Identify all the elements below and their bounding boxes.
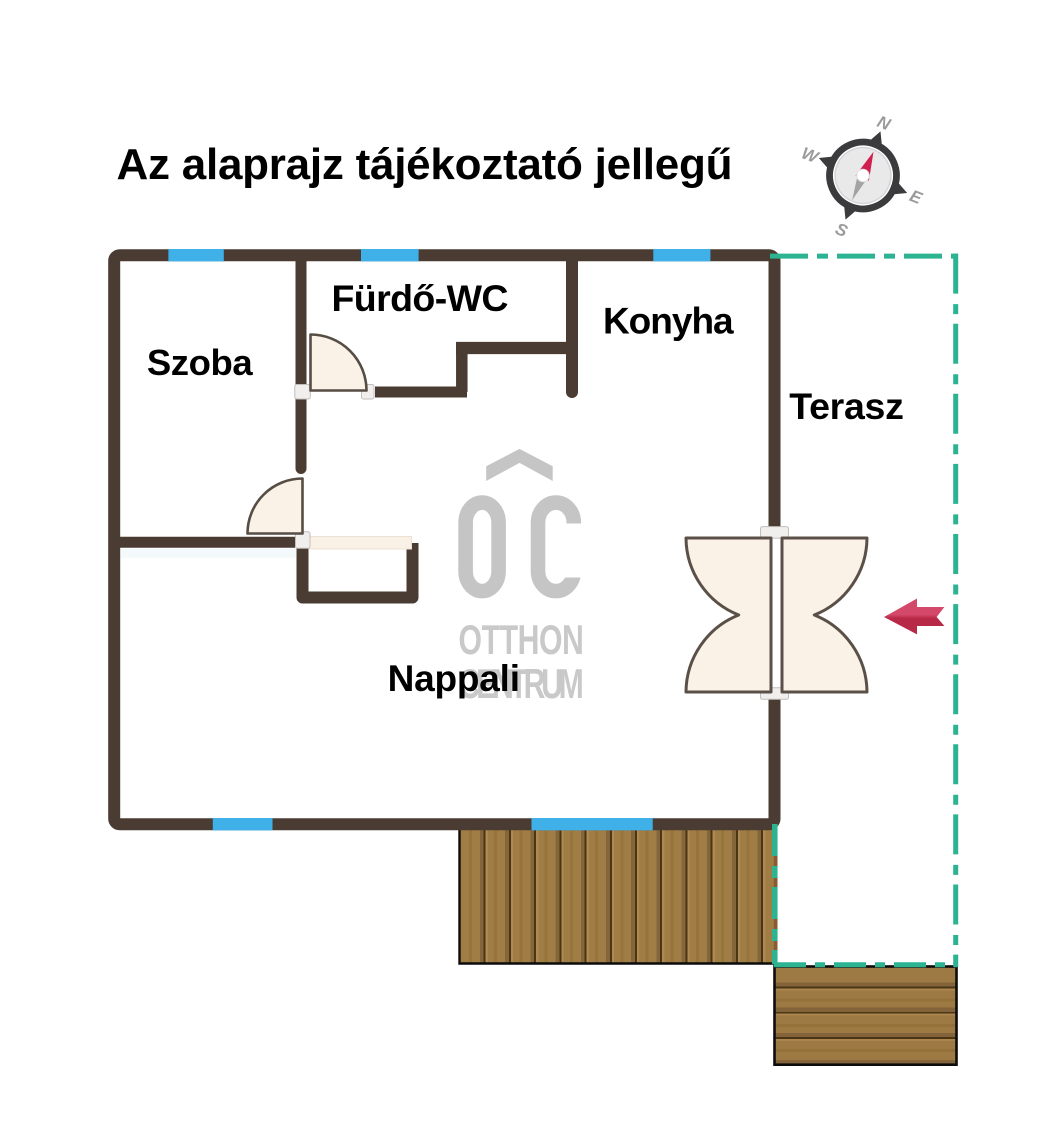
svg-text:Nappali: Nappali [388,658,520,699]
svg-text:N: N [875,112,894,134]
svg-text:OTTHON: OTTHON [459,616,584,663]
svg-text:Az alaprajz tájékoztató jelleg: Az alaprajz tájékoztató jellegű [117,140,733,189]
svg-text:W: W [799,143,823,167]
svg-text:Fürdő-WC: Fürdő-WC [332,277,509,319]
svg-text:Szoba: Szoba [147,342,254,383]
svg-text:E: E [907,186,925,208]
svg-text:S: S [833,219,851,241]
svg-text:Konyha: Konyha [603,301,734,342]
svg-text:Terasz: Terasz [789,385,903,427]
